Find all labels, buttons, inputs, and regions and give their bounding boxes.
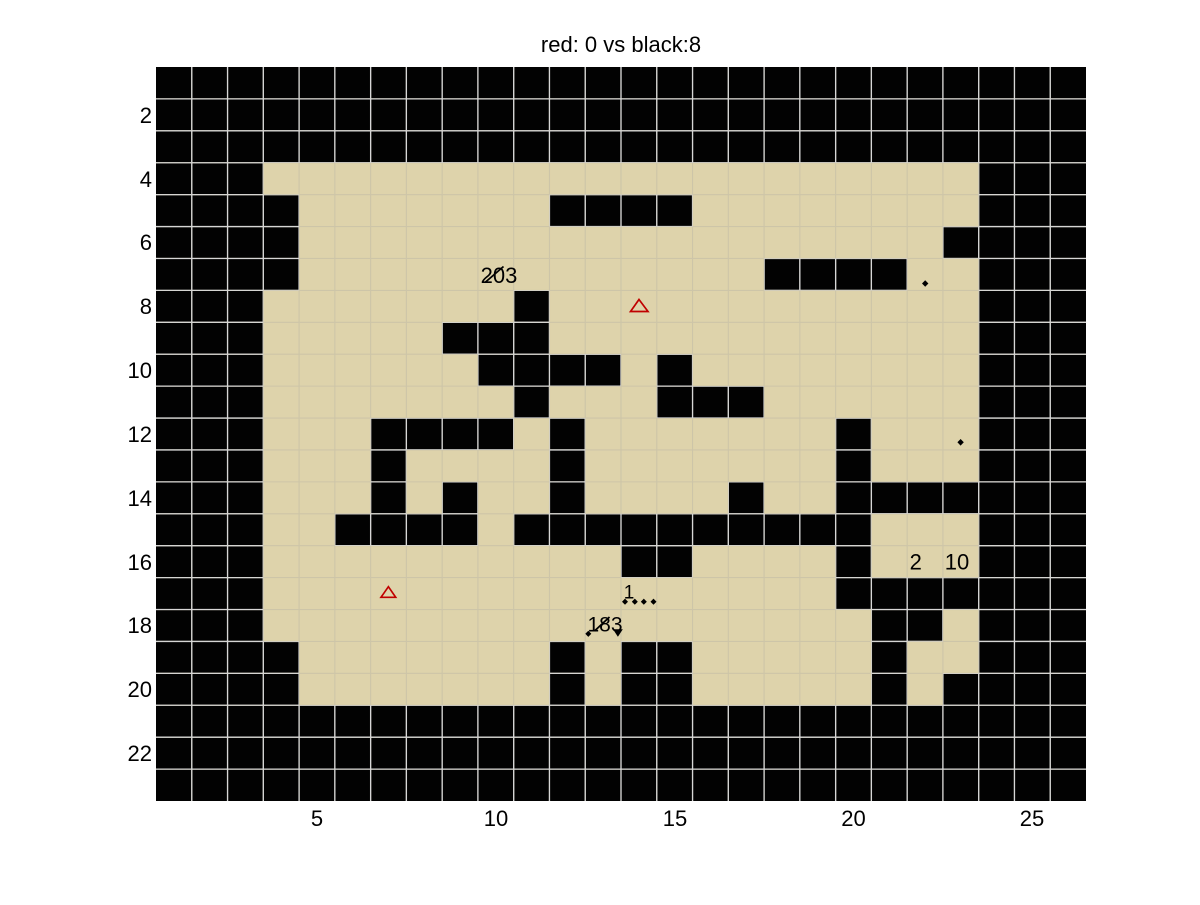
svg-text:20: 20 <box>841 806 865 831</box>
svg-text:4: 4 <box>140 167 152 192</box>
svg-text:10: 10 <box>484 806 508 831</box>
svg-text:red: 0 vs black:8: red: 0 vs black:8 <box>541 32 701 57</box>
svg-text:8: 8 <box>140 294 152 319</box>
svg-text:203: 203 <box>481 263 518 288</box>
svg-text:25: 25 <box>1020 806 1044 831</box>
svg-text:15: 15 <box>663 806 687 831</box>
svg-text:14: 14 <box>128 486 152 511</box>
svg-text:20: 20 <box>128 677 152 702</box>
svg-text:16: 16 <box>128 550 152 575</box>
svg-text:22: 22 <box>128 741 152 766</box>
svg-text:5: 5 <box>311 806 323 831</box>
svg-text:18: 18 <box>128 613 152 638</box>
svg-text:6: 6 <box>140 230 152 255</box>
svg-text:2: 2 <box>140 103 152 128</box>
svg-text:2: 2 <box>910 550 922 575</box>
svg-text:12: 12 <box>128 422 152 447</box>
svg-text:10: 10 <box>945 550 969 575</box>
svg-text:10: 10 <box>128 358 152 383</box>
